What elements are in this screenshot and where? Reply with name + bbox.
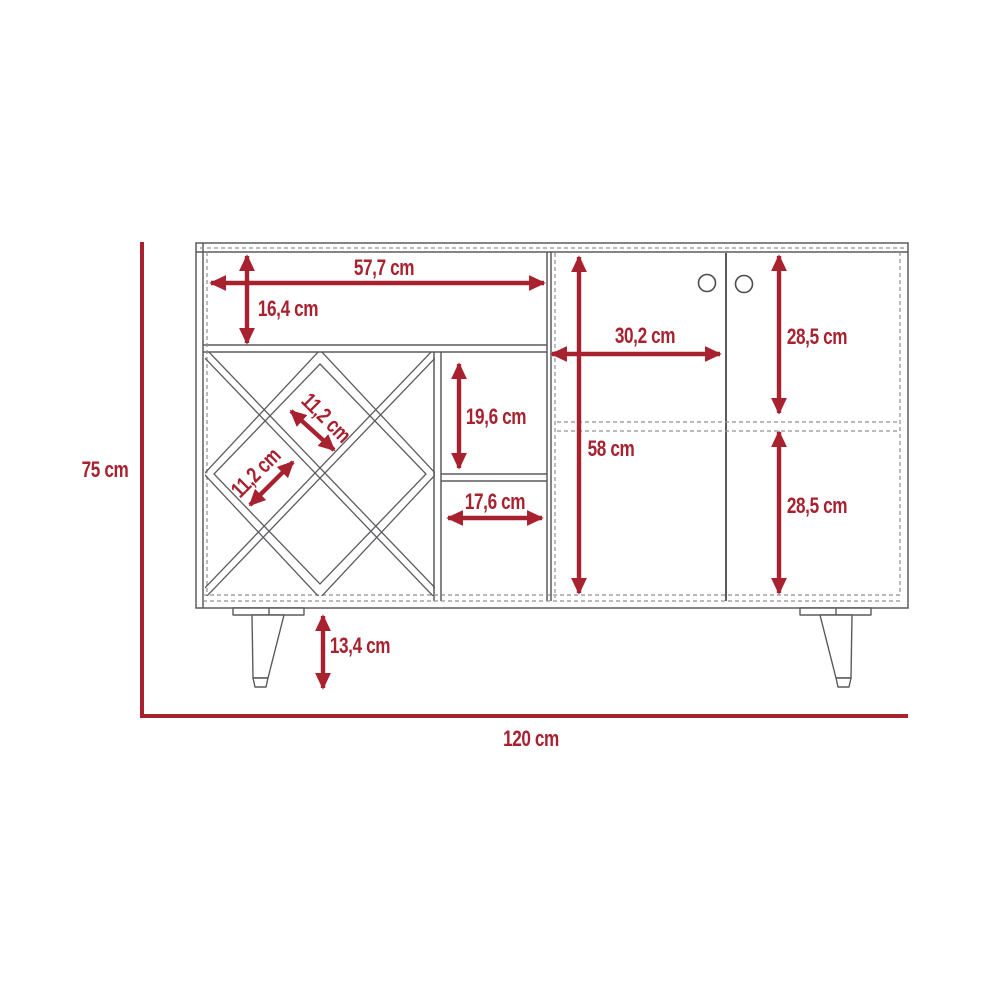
left-door-handle-icon bbox=[699, 275, 716, 292]
left-leg bbox=[233, 608, 304, 687]
dim-label-top-shelf-height: 16,4 cm bbox=[258, 298, 318, 320]
right-door-handle-icon bbox=[736, 276, 753, 293]
dim-label-leg-height: 13,4 cm bbox=[330, 635, 390, 657]
dim-label-lower-door-height: 28,5 cm bbox=[787, 495, 847, 517]
right-leg bbox=[800, 608, 871, 687]
dim-label-cubby-width: 17,6 cm bbox=[465, 491, 525, 513]
dim-label-door-width: 30,2 cm bbox=[615, 325, 675, 347]
dim-label-overall-height: 75 cm bbox=[82, 459, 129, 481]
dim-label-upper-door-height: 28,5 cm bbox=[787, 326, 847, 348]
dimension-diagram: 75 cm 120 cm 57,7 cm 16,4 cm 30,2 cm 58 … bbox=[0, 0, 1000, 1000]
dim-label-top-shelf-width: 57,7 cm bbox=[354, 257, 414, 279]
dim-label-interior-height: 58 cm bbox=[588, 438, 635, 460]
dim-label-overall-width: 120 cm bbox=[503, 728, 559, 750]
dim-label-cubby-height: 19,6 cm bbox=[466, 406, 526, 428]
